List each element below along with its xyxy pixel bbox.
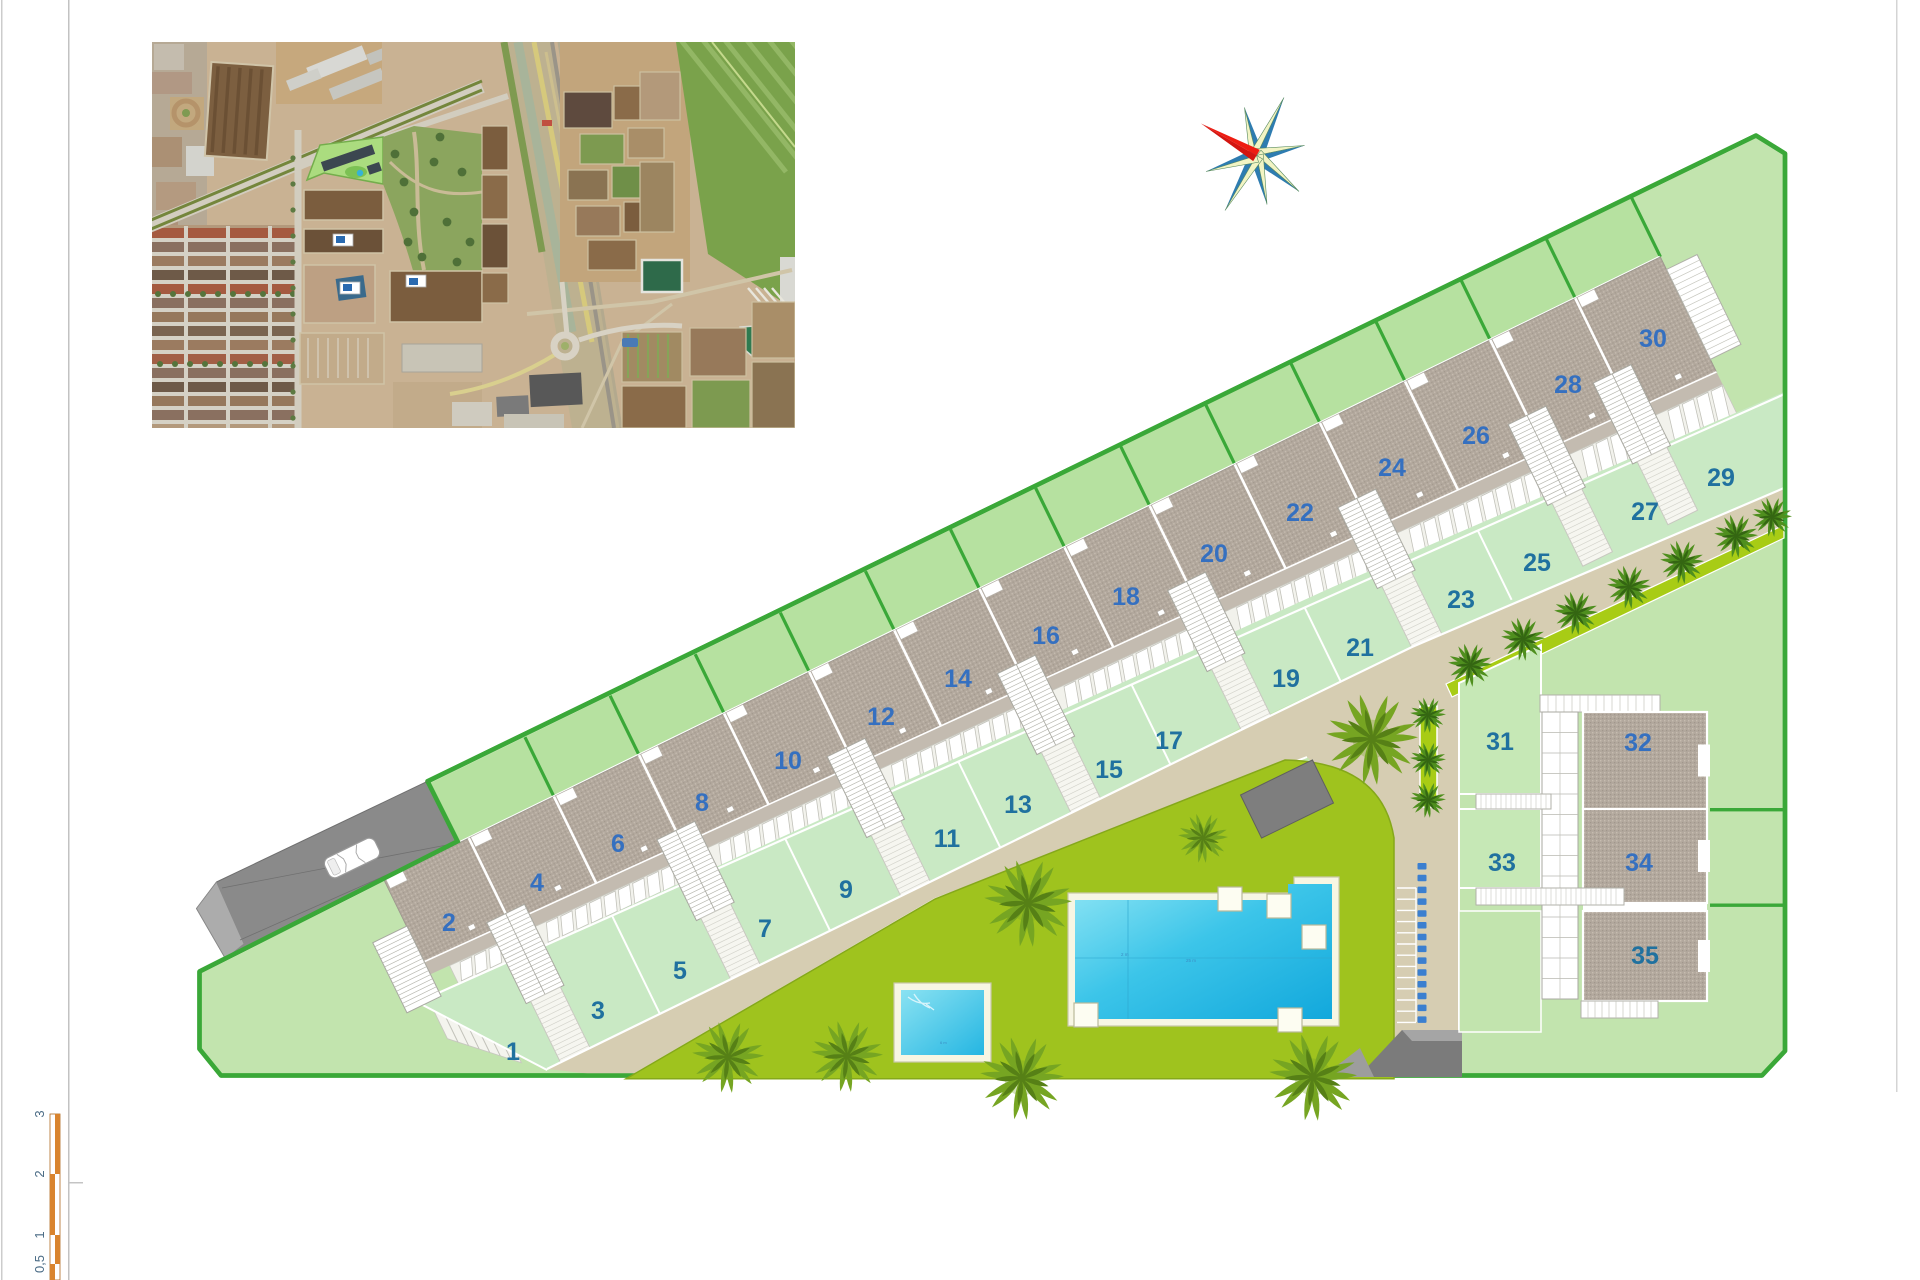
svg-text:2: 2: [32, 1170, 47, 1177]
svg-text:19: 19: [1272, 665, 1300, 693]
svg-text:17: 17: [1155, 727, 1183, 755]
svg-text:2 m: 2 m: [1121, 952, 1129, 957]
svg-text:4: 4: [530, 869, 544, 897]
svg-text:9: 9: [839, 876, 853, 904]
svg-text:6 m: 6 m: [940, 1040, 947, 1045]
svg-text:33: 33: [1488, 849, 1516, 877]
svg-text:10: 10: [774, 747, 802, 775]
svg-text:23: 23: [1447, 586, 1475, 614]
svg-text:2: 2: [442, 909, 456, 937]
svg-text:32: 32: [1624, 729, 1652, 757]
svg-text:11: 11: [934, 825, 961, 853]
svg-text:1: 1: [506, 1038, 520, 1066]
svg-text:35: 35: [1631, 942, 1659, 970]
svg-text:31: 31: [1486, 728, 1514, 756]
svg-text:7: 7: [758, 915, 772, 943]
svg-text:24: 24: [1378, 454, 1406, 482]
svg-text:25: 25: [1523, 549, 1551, 577]
svg-text:1: 1: [32, 1231, 47, 1238]
svg-text:5: 5: [673, 957, 687, 985]
svg-text:22: 22: [1286, 499, 1314, 527]
svg-text:20: 20: [1200, 540, 1228, 568]
svg-text:12: 12: [867, 703, 895, 731]
svg-text:28: 28: [1554, 371, 1582, 399]
svg-text:14: 14: [944, 665, 972, 693]
svg-text:21: 21: [1346, 634, 1374, 662]
svg-text:34: 34: [1625, 849, 1653, 877]
svg-text:8: 8: [695, 789, 709, 817]
svg-text:27: 27: [1631, 498, 1659, 526]
svg-text:13: 13: [1004, 791, 1032, 819]
svg-text:3: 3: [32, 1110, 47, 1117]
svg-text:0,5: 0,5: [32, 1255, 47, 1273]
svg-text:15: 15: [1095, 756, 1123, 784]
svg-text:29: 29: [1707, 464, 1735, 492]
svg-text:16: 16: [1032, 622, 1060, 650]
svg-text:3: 3: [591, 997, 605, 1025]
svg-text:6: 6: [611, 830, 625, 858]
svg-text:30: 30: [1639, 325, 1667, 353]
svg-text:25 m: 25 m: [1186, 958, 1196, 963]
svg-text:18: 18: [1112, 583, 1140, 611]
svg-text:26: 26: [1462, 422, 1490, 450]
